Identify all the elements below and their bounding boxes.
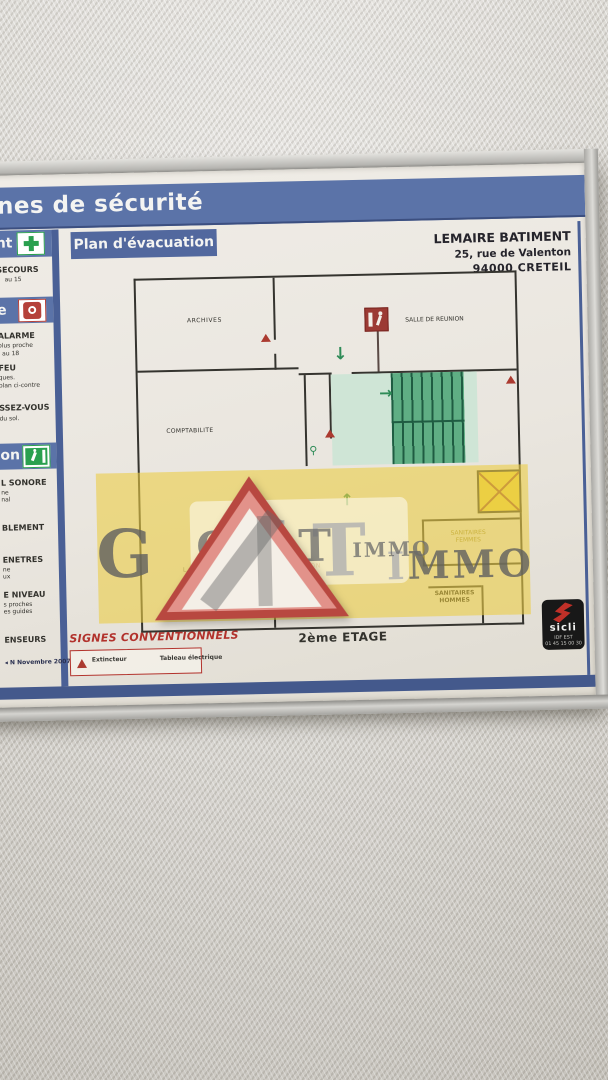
extinguisher-triangle-icon (506, 375, 516, 383)
edition-marker-icon: ◂ (5, 660, 8, 667)
sidebar-s4-line2: du sol. (0, 415, 20, 422)
watermark-immo-small: IMMO (352, 538, 431, 560)
sidebar-band2-text: e (0, 303, 7, 319)
extinguisher-triangle-icon (325, 429, 335, 437)
room-label-archives: ARCHIVES (180, 317, 228, 325)
sidebar-s3-line2: ques. (0, 374, 15, 381)
sidebar-s2-line1: ALARME (0, 331, 35, 341)
sicli-phone: 01 45 15 00 30 (543, 640, 585, 647)
header-band: nes de sécurité (0, 175, 585, 232)
sidebar-s7-line2: ne (3, 567, 11, 574)
staircase (391, 372, 466, 465)
sidebar-s5-line2: ne (1, 490, 9, 497)
sidebar-s2-line3: au 18 (2, 350, 19, 357)
sidebar-band3-text: on (0, 447, 20, 463)
sicli-brand: sicli (542, 622, 584, 634)
evacuation-arrow-right-icon: → (379, 385, 393, 401)
sidebar-s9-line1: ENSEURS (4, 635, 46, 645)
sicli-s-icon (553, 602, 573, 622)
watermark-letter-g-large: G (96, 520, 154, 587)
emergency-exit-icon (22, 445, 50, 469)
sidebar-s5-line1: L SONORE (1, 478, 47, 488)
sidebar-s4-line1: SSEZ-VOUS (0, 403, 50, 413)
stick-figure-icon: ⚲ (309, 445, 317, 456)
exit-pictogram-icon (364, 307, 389, 332)
wall (134, 270, 517, 280)
legend-extinguisher-icon (77, 658, 87, 667)
sign-pole (377, 329, 380, 371)
wall (138, 367, 299, 373)
sidebar-band1-text: nt (0, 235, 13, 251)
poster-title: nes de sécurité (0, 189, 204, 219)
sicli-logo: sicli IDF EST 01 45 15 00 30 (542, 599, 585, 650)
sidebar-s7-line1: ENETRES (3, 555, 44, 565)
sidebar-edition: ◂ N Novembre 2007 (5, 658, 71, 666)
sidebar-s3-line3: plan ci-contre (0, 382, 40, 390)
legend-item1-label: Extincteur (92, 656, 127, 664)
sidebar-s8-line3: es guides (4, 608, 33, 616)
evacuation-sign-frame: nes de sécurité nt SECOURS au 15 e ALARM… (0, 149, 608, 724)
wall (304, 375, 308, 466)
sidebar-s8-line1: E NIVEAU (3, 590, 45, 600)
watermark-warning-triangle (152, 474, 349, 620)
sidebar-s5-line3: nal (1, 497, 10, 504)
room-label-comptabilite: COMPTABILITE (164, 427, 216, 435)
sidebar-s1-line1: SECOURS (0, 265, 39, 275)
watermark-letter-stroke (257, 516, 273, 606)
sidebar-s7-line3: ux (3, 574, 11, 581)
first-aid-cross-icon (16, 232, 44, 256)
sidebar-s2-line2: plus proche (0, 342, 33, 350)
room-label-salle-de-reunion: SALLE DE REUNION (404, 316, 464, 325)
alarm-button-icon (18, 299, 46, 323)
floor-label: 2ème ETAGE (298, 629, 387, 645)
legend-item2-label: Tableau électrique (160, 654, 223, 662)
sidebar-s3-line1: FEU (0, 363, 16, 372)
plan-evacuation-banner: Plan d'évacuation (71, 229, 218, 259)
evacuation-poster: nes de sécurité nt SECOURS au 15 e ALARM… (0, 163, 596, 709)
sidebar-s1-line2: au 15 (4, 276, 21, 283)
plan-evacuation-label: Plan d'évacuation (71, 234, 217, 253)
sidebar-s6-line1: BLEMENT (2, 523, 44, 533)
corridor-strip (464, 371, 479, 462)
legend-box: Extincteur Tableau électrique (70, 647, 203, 676)
extinguisher-triangle-icon (261, 334, 271, 342)
evacuation-arrow-down-icon: ↓ (333, 346, 348, 363)
wall (273, 278, 276, 340)
